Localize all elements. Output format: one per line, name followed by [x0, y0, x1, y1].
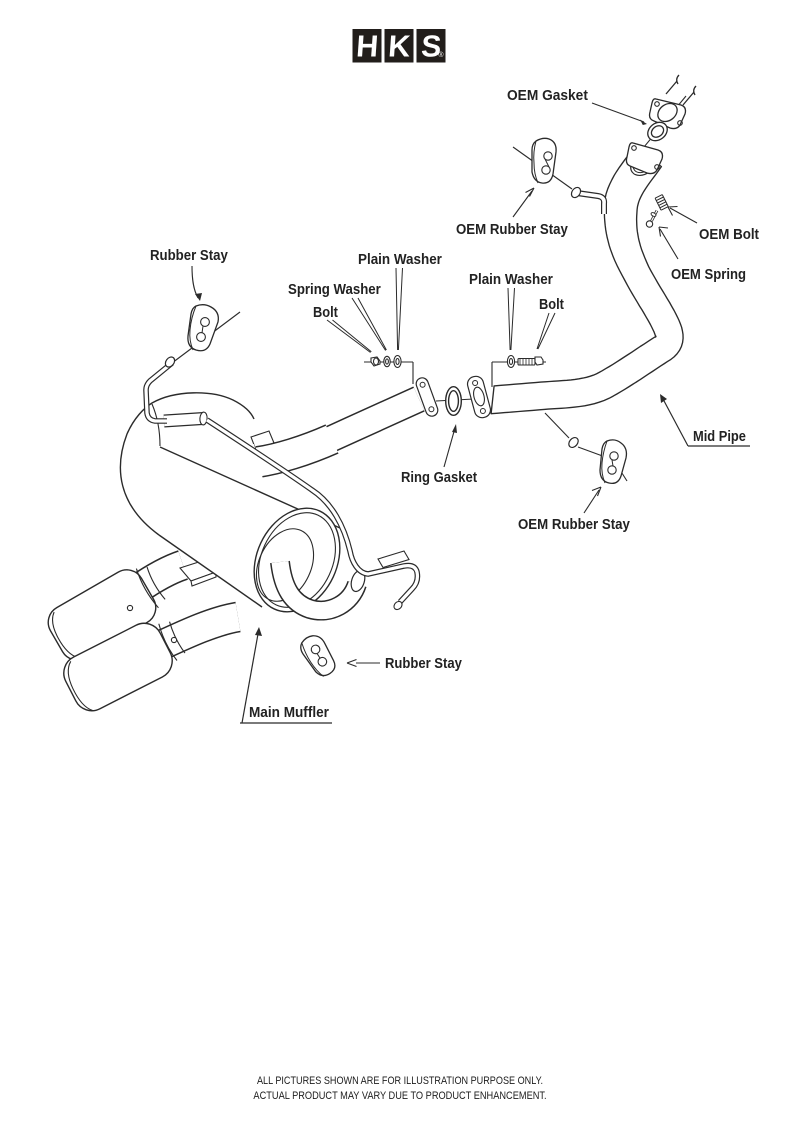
svg-text:OEM Bolt: OEM Bolt	[699, 226, 759, 243]
svg-text:Plain Washer: Plain Washer	[358, 251, 442, 268]
svg-text:OEM Gasket: OEM Gasket	[507, 87, 588, 104]
svg-text:OEM Spring: OEM Spring	[671, 265, 746, 282]
svg-text:Spring Washer: Spring Washer	[288, 280, 381, 297]
svg-text:ACTUAL PRODUCT MAY VARY DUE TO: ACTUAL PRODUCT MAY VARY DUE TO PRODUCT E…	[253, 1090, 546, 1102]
svg-text:H: H	[355, 30, 379, 64]
svg-text:®: ®	[438, 51, 444, 59]
svg-text:OEM Rubber Stay: OEM Rubber Stay	[456, 220, 568, 237]
svg-text:Main Muffler: Main Muffler	[249, 704, 329, 721]
svg-text:Rubber Stay: Rubber Stay	[150, 246, 228, 263]
svg-text:Bolt: Bolt	[539, 295, 564, 312]
svg-text:Bolt: Bolt	[313, 303, 338, 320]
svg-text:ALL PICTURES SHOWN ARE FOR ILL: ALL PICTURES SHOWN ARE FOR ILLUSTRATION …	[257, 1075, 543, 1087]
svg-text:K: K	[387, 30, 411, 64]
svg-text:Plain Washer: Plain Washer	[469, 271, 553, 288]
svg-text:Mid Pipe: Mid Pipe	[693, 427, 746, 444]
svg-text:Ring Gasket: Ring Gasket	[401, 468, 477, 485]
svg-text:Rubber Stay: Rubber Stay	[385, 654, 462, 671]
svg-text:OEM Rubber Stay: OEM Rubber Stay	[518, 515, 630, 532]
